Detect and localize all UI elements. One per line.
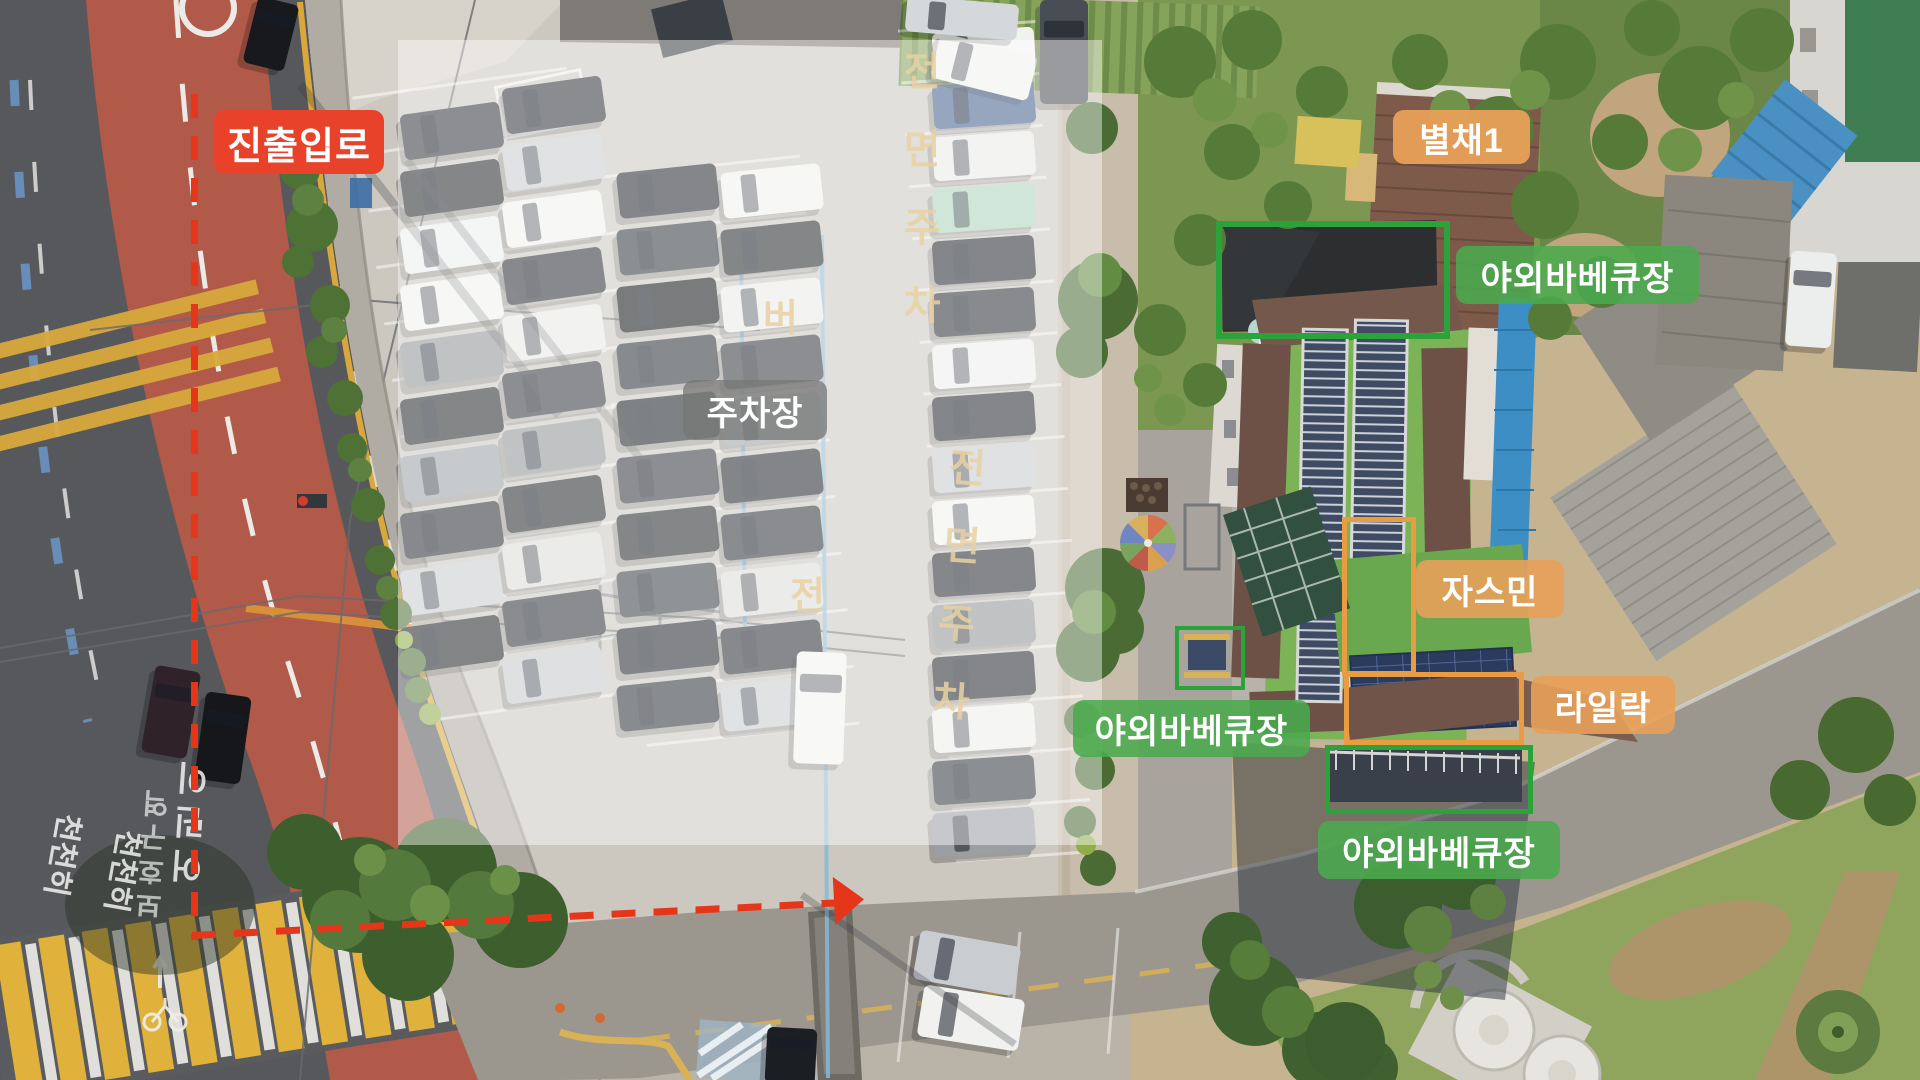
jasmine-box bbox=[1342, 517, 1416, 676]
jasmine-label: 자스민 bbox=[1416, 560, 1564, 618]
bbq-mid-label: 야외바베큐장 bbox=[1073, 700, 1310, 757]
lilac-box bbox=[1344, 672, 1524, 745]
parking-highlight-overlay bbox=[398, 40, 1102, 845]
bbq-bottom-label: 야외바베큐장 bbox=[1318, 821, 1560, 879]
parking-label: 주차장 bbox=[683, 380, 827, 440]
bbq-mid-box bbox=[1175, 626, 1245, 690]
entry-route-label: 진출입로 bbox=[214, 110, 384, 174]
lilac-label: 라일락 bbox=[1531, 676, 1675, 734]
bbq-bottom-box bbox=[1325, 745, 1533, 814]
aerial-photo-stage: 전면주차 전면주차 버 전 어린이 보호구역 천천히 천천히 진출입로 별채1 … bbox=[0, 0, 1920, 1080]
bbq-top-label: 야외바베큐장 bbox=[1456, 246, 1699, 304]
route-line-vertical bbox=[191, 94, 198, 940]
route-arrowhead-icon bbox=[833, 875, 865, 925]
parasol bbox=[1120, 515, 1176, 571]
annex1-label: 별채1 bbox=[1393, 110, 1530, 164]
bbq-top-box bbox=[1216, 221, 1450, 339]
